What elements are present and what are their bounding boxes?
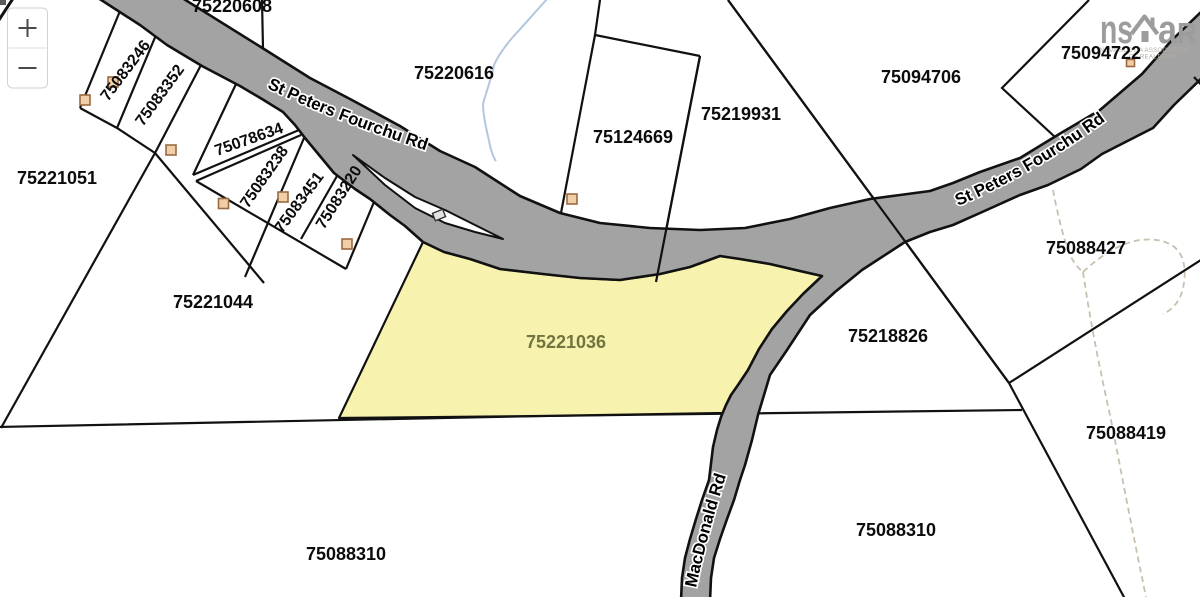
svg-text:75221044: 75221044 bbox=[173, 292, 253, 312]
svg-text:75088310: 75088310 bbox=[856, 520, 936, 540]
svg-text:75218826: 75218826 bbox=[848, 326, 928, 346]
svg-text:75088419: 75088419 bbox=[1086, 423, 1166, 443]
svg-text:75220608: 75220608 bbox=[192, 0, 272, 16]
svg-text:75088310: 75088310 bbox=[306, 544, 386, 564]
svg-text:75219931: 75219931 bbox=[701, 104, 781, 124]
svg-text:a: a bbox=[1158, 8, 1178, 52]
svg-text:75094722: 75094722 bbox=[1061, 43, 1141, 63]
svg-text:75221051: 75221051 bbox=[17, 168, 97, 188]
svg-text:75221036: 75221036 bbox=[526, 332, 606, 352]
svg-text:R: R bbox=[1177, 18, 1197, 50]
svg-text:75094706: 75094706 bbox=[881, 67, 961, 87]
svg-text:75220616: 75220616 bbox=[414, 63, 494, 83]
svg-text:75124669: 75124669 bbox=[593, 127, 673, 147]
svg-text:75088427: 75088427 bbox=[1046, 238, 1126, 258]
